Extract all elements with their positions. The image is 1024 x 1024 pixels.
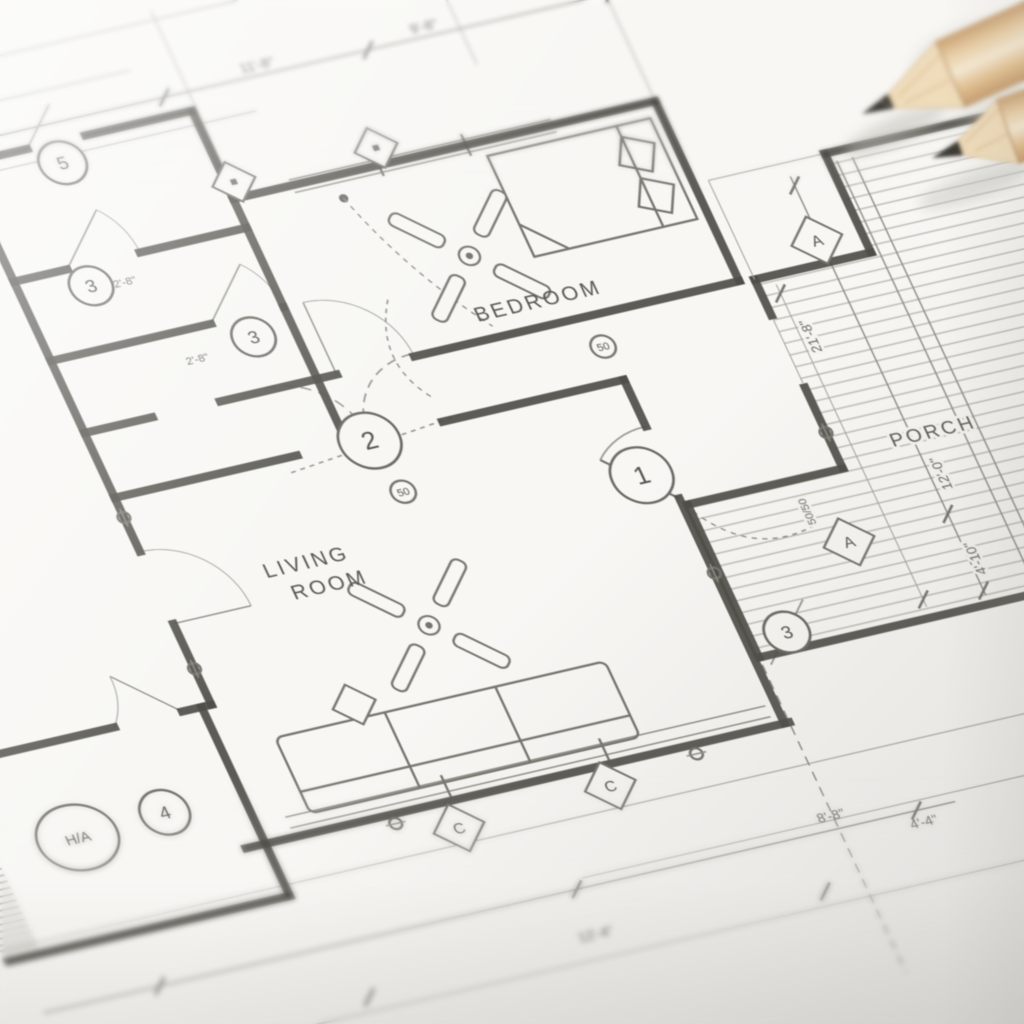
blueprint-photo: 1 2 3 3 3 4 5 H/A — [0, 0, 1024, 1024]
floor-plan-drawing: 1 2 3 3 3 4 5 H/A — [0, 0, 1024, 1024]
